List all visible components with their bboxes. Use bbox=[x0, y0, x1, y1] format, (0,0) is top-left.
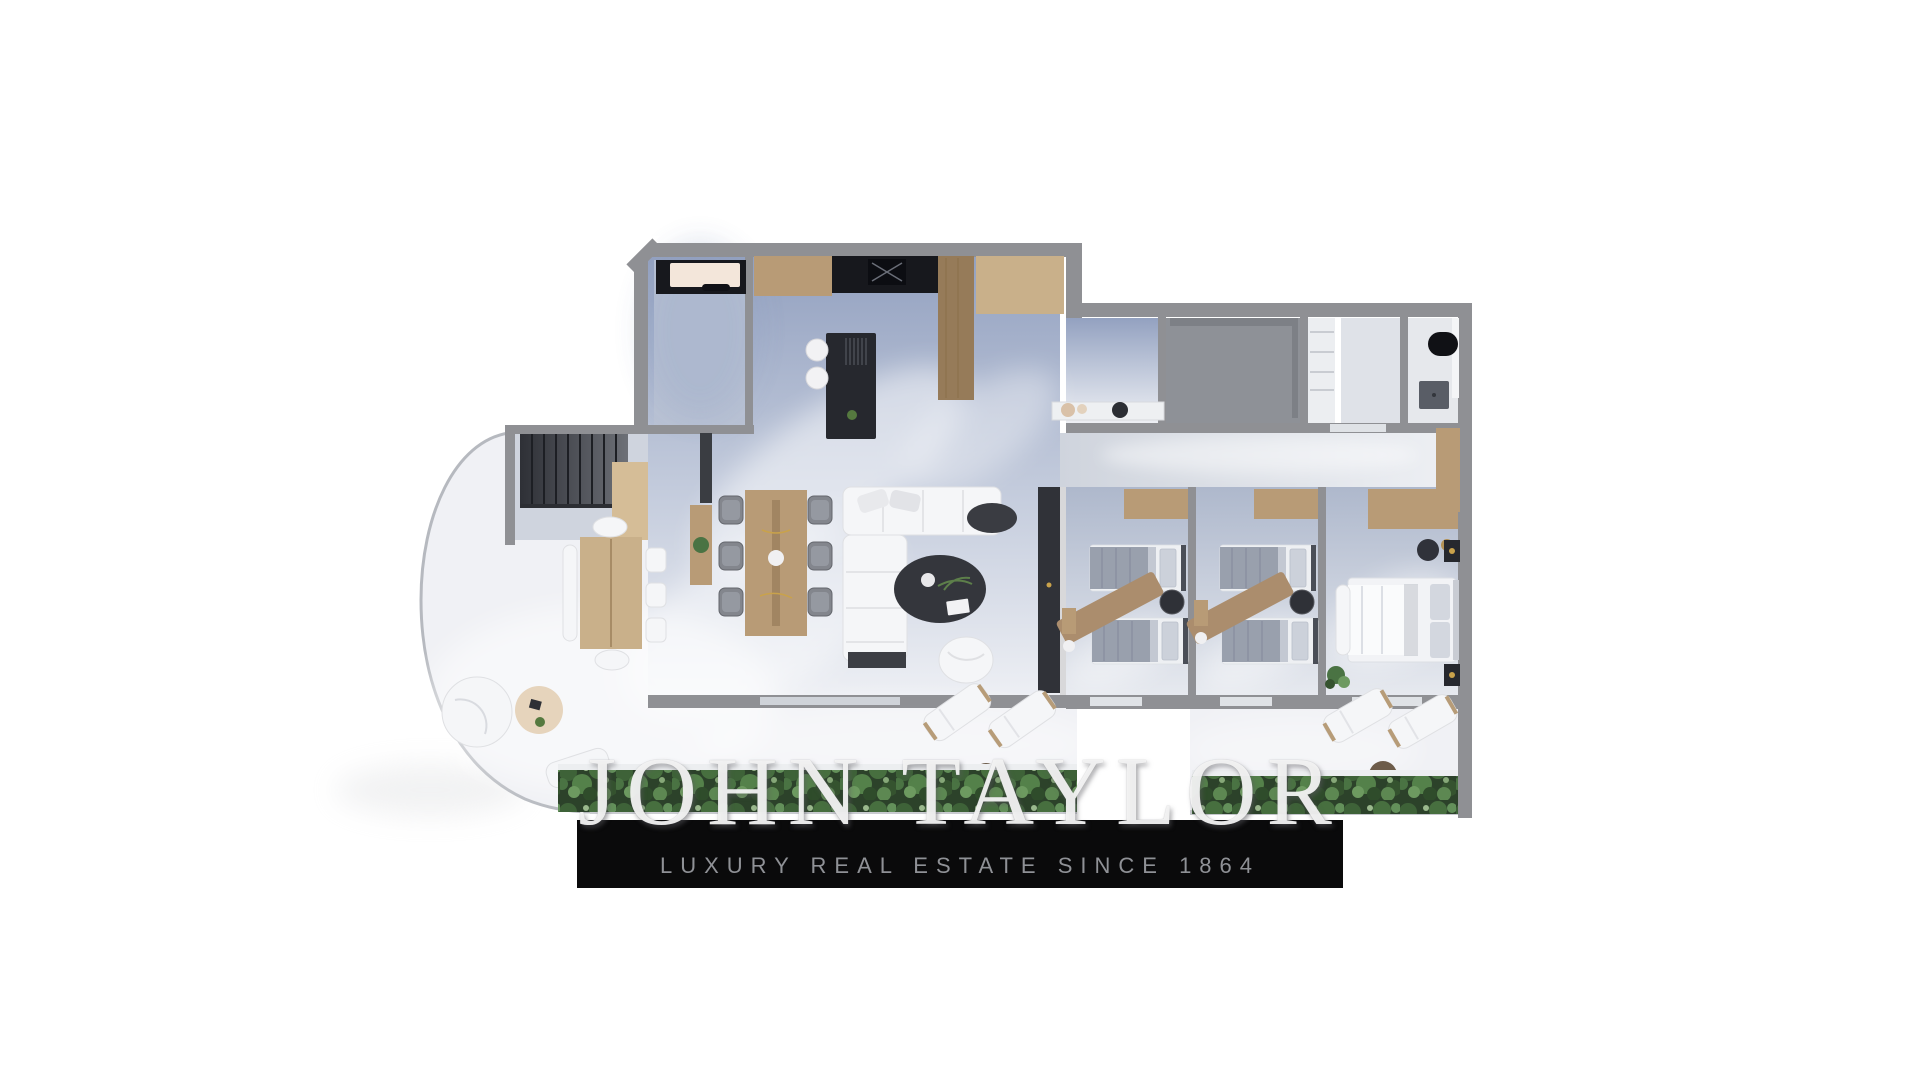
dressing-room-floor bbox=[1166, 318, 1300, 423]
brand-banner: LUXURY REAL ESTATE SINCE 1864 bbox=[577, 820, 1343, 888]
twin-bed bbox=[1222, 618, 1318, 664]
vanity-chair bbox=[1417, 539, 1439, 561]
round-daybed bbox=[442, 677, 512, 747]
hall-console bbox=[1052, 402, 1164, 420]
bedside-table bbox=[1160, 590, 1184, 614]
island-plant bbox=[847, 410, 857, 420]
kitchen-cabinet-corner bbox=[976, 256, 1064, 314]
master-bed bbox=[1348, 578, 1459, 662]
armchair bbox=[939, 637, 993, 683]
wardrobe bbox=[1124, 489, 1188, 519]
floor-plan-rendering bbox=[0, 0, 1920, 1080]
bed-bench bbox=[1336, 585, 1350, 655]
bedside-table bbox=[1290, 590, 1314, 614]
wardrobe bbox=[1254, 489, 1318, 519]
planters bbox=[558, 764, 1458, 814]
nightstand bbox=[1194, 600, 1208, 626]
brand-tagline: LUXURY REAL ESTATE SINCE 1864 bbox=[660, 853, 1260, 888]
laundry-room bbox=[656, 260, 746, 294]
twin-bed bbox=[1092, 618, 1188, 664]
closet-floor bbox=[1308, 318, 1335, 423]
plant bbox=[693, 537, 709, 553]
kitchen-tall-unit bbox=[938, 256, 974, 400]
real-estate-floorplan-page: JOHN TAYLOR LUXURY REAL ESTATE SINCE 186… bbox=[0, 0, 1920, 1080]
kitchen-island bbox=[826, 333, 876, 439]
glass-door-frame bbox=[700, 433, 712, 503]
washing-machine bbox=[670, 263, 740, 287]
planter-hedge bbox=[558, 770, 1077, 812]
media-wall bbox=[1038, 487, 1060, 693]
side-table bbox=[967, 503, 1017, 533]
planter-hedge-right bbox=[1192, 776, 1458, 814]
outdoor-bench bbox=[563, 545, 577, 641]
wardrobe bbox=[1368, 489, 1458, 529]
kitchen-cabinet-run bbox=[754, 256, 832, 296]
nightstand bbox=[1062, 608, 1076, 634]
coffee-table bbox=[894, 555, 986, 623]
toilet bbox=[1428, 332, 1458, 356]
